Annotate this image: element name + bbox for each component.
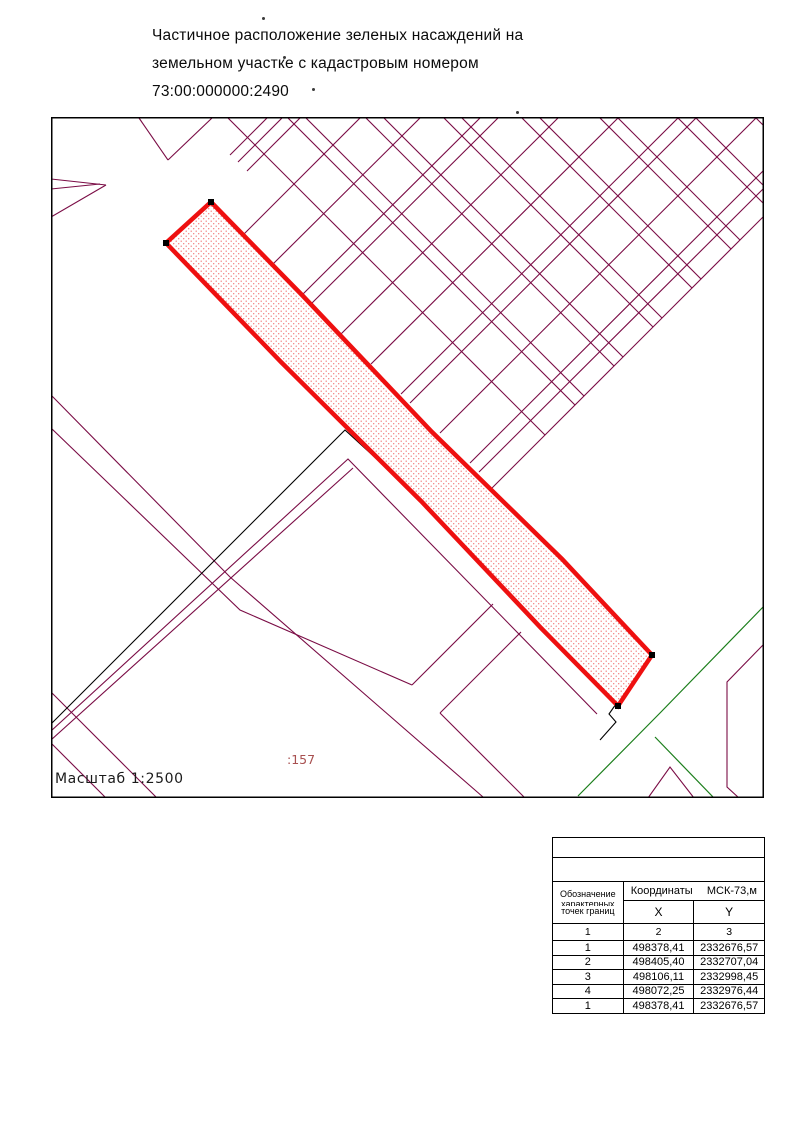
x-coordinate-cell: 498378,41 — [623, 941, 694, 956]
coordinates-header-cell: Координаты МСК-73,м — [623, 882, 764, 901]
point-number-cell: 2 — [553, 955, 624, 970]
cadastral-road-line — [51, 428, 412, 685]
cadastral-line — [243, 117, 361, 235]
scan-dot — [312, 88, 315, 91]
x-coordinate-cell: 498106,11 — [623, 970, 694, 985]
cadastral-line — [599, 117, 731, 249]
table-row: 2498405,402332707,04 — [553, 955, 765, 970]
index-cell: 2 — [623, 924, 694, 941]
y-coordinate-cell: 2332976,44 — [694, 984, 765, 999]
y-coordinate-cell: 2332707,04 — [694, 955, 765, 970]
cadastral-line — [440, 117, 757, 433]
boundary-point-marker — [208, 199, 214, 205]
x-coordinate-cell: 498378,41 — [623, 999, 694, 1014]
point-number-cell: 3 — [553, 970, 624, 985]
cadastral-line — [311, 117, 499, 304]
scan-dot — [262, 17, 265, 20]
scan-dot — [283, 56, 286, 59]
cadastral-road-line — [648, 767, 694, 798]
cadastral-line — [51, 185, 106, 217]
cadastral-number: 73:00:000000:2490 — [152, 78, 632, 106]
map-scale-label: Масштаб 1:2500 — [55, 771, 184, 787]
point-number-cell: 1 — [553, 941, 624, 956]
cadastral-line — [677, 117, 764, 204]
green-boundary-line — [655, 737, 714, 798]
cadastral-line — [440, 713, 525, 798]
table-index-row: 1 2 3 — [553, 924, 765, 941]
boundary-points-table: Обозначение характерных точек границ Коо… — [552, 837, 765, 1014]
cadastral-line — [461, 117, 662, 318]
table-row: 1498378,412332676,57 — [553, 941, 765, 956]
cadastral-line — [341, 117, 559, 334]
coordinate-system: МСК-73,м — [707, 885, 757, 897]
designation-header-cell: Обозначение характерных точек границ — [553, 882, 624, 924]
scan-dot — [516, 111, 519, 114]
cadastral-map — [51, 117, 764, 798]
empty-cell — [553, 858, 765, 882]
empty-cell — [553, 838, 765, 858]
page-title: Частичное расположение зеленых насаждени… — [152, 22, 632, 106]
table-row: 4498072,252332976,44 — [553, 984, 765, 999]
x-column-header: X — [623, 901, 694, 924]
coordinates-title: Координаты — [631, 885, 693, 897]
title-line-2: земельном участке с кадастровым номером — [152, 50, 632, 78]
table-row: 3498106,112332998,45 — [553, 970, 765, 985]
designation-line-1: Обозначение — [553, 889, 623, 899]
cadastral-line — [272, 117, 421, 265]
parcel-2490-outline — [166, 202, 652, 706]
cadastral-line — [470, 170, 764, 463]
table-row: 1498378,412332676,57 — [553, 999, 765, 1014]
designation-line-3: точек границ — [553, 906, 623, 916]
cadastral-road-line — [51, 468, 353, 740]
y-coordinate-cell: 2332676,57 — [694, 941, 765, 956]
y-coordinate-cell: 2332676,57 — [694, 999, 765, 1014]
cadastral-line — [479, 188, 764, 472]
cadastral-line — [51, 184, 100, 189]
index-cell: 3 — [694, 924, 765, 941]
cadastral-road-line — [727, 645, 763, 798]
cadastral-line — [695, 117, 764, 186]
cadastral-line — [168, 118, 212, 160]
cadastral-line — [230, 118, 267, 155]
y-column-header: Y — [694, 901, 765, 924]
y-coordinate-cell: 2332998,45 — [694, 970, 765, 985]
cadastral-line — [488, 216, 764, 492]
index-cell: 1 — [553, 924, 624, 941]
cadastral-line — [247, 117, 301, 171]
cadastral-scheme-page: Частичное расположение зеленых насаждени… — [0, 0, 794, 1123]
cadastral-line — [383, 117, 623, 357]
designation-line-2: характерных — [553, 899, 623, 906]
x-coordinate-cell: 498072,25 — [623, 984, 694, 999]
table-header-row: Обозначение характерных точек границ Коо… — [553, 882, 765, 901]
boundary-point-marker — [649, 652, 655, 658]
cadastral-line — [410, 117, 697, 403]
title-line-1: Частичное расположение зеленых насаждени… — [152, 22, 632, 50]
cadastral-line — [371, 117, 619, 364]
cadastral-line — [539, 117, 701, 279]
cadastral-line — [139, 118, 168, 160]
neighbor-parcel-label: :157 — [287, 752, 315, 767]
point-number-cell: 4 — [553, 984, 624, 999]
table-row — [553, 858, 765, 882]
boundary-point-marker — [615, 703, 621, 709]
x-coordinate-cell: 498405,40 — [623, 955, 694, 970]
boundary-point-marker — [163, 240, 169, 246]
point-number-cell: 1 — [553, 999, 624, 1014]
cadastral-line — [443, 117, 653, 327]
table-row — [553, 838, 765, 858]
map-figure — [51, 117, 764, 798]
